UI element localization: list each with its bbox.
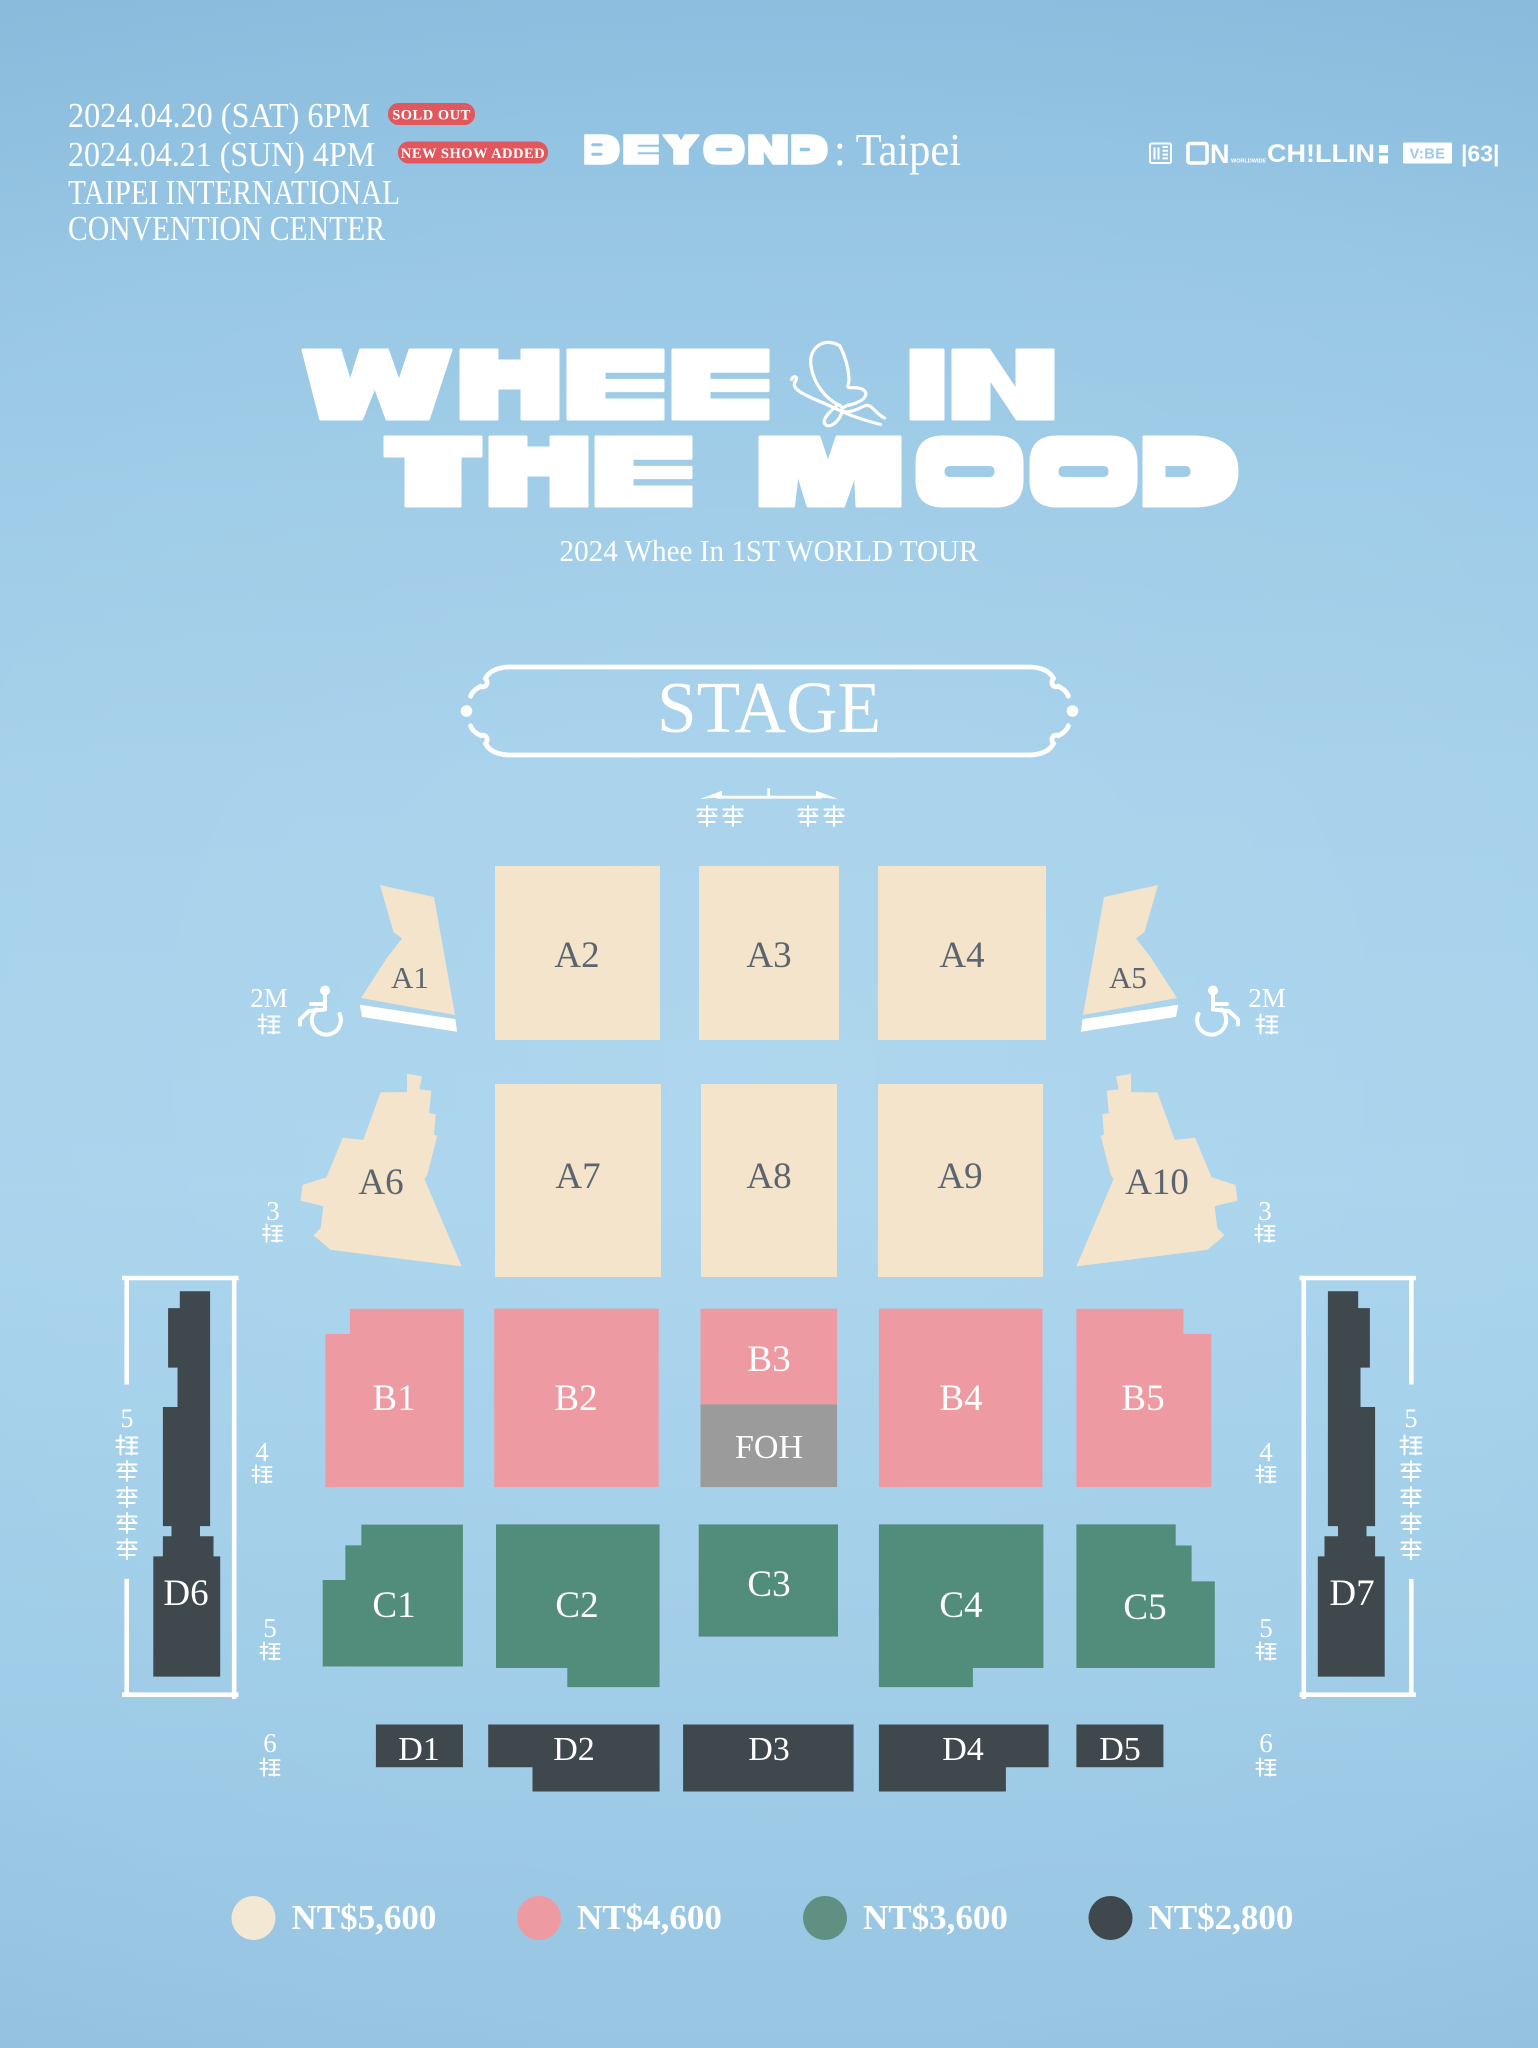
svg-text:A3: A3 [746,935,791,976]
svg-text:STAGE: STAGE [657,667,881,748]
svg-text:A4: A4 [939,935,984,976]
svg-text:A7: A7 [555,1156,600,1197]
svg-text:B2: B2 [554,1378,597,1419]
svg-text:NT$4,600: NT$4,600 [577,1898,722,1937]
svg-text:B1: B1 [372,1378,415,1419]
svg-text:FOH: FOH [735,1429,803,1466]
svg-text:A6: A6 [358,1162,403,1203]
svg-text:D7: D7 [1329,1573,1374,1614]
svg-text:2M: 2M [1248,983,1286,1013]
svg-text:D3: D3 [748,1731,790,1768]
svg-text:B5: B5 [1121,1378,1164,1419]
svg-text:N: N [1210,139,1230,169]
svg-text:WORLDWIDE: WORLDWIDE [1231,159,1266,165]
svg-text:5: 5 [1259,1613,1273,1643]
svg-text:4: 4 [255,1437,269,1467]
svg-text:D1: D1 [398,1731,440,1768]
svg-text:V:BE: V:BE [1410,147,1446,163]
svg-text:D6: D6 [163,1573,208,1614]
svg-text:NEW SHOW ADDED: NEW SHOW ADDED [401,146,545,162]
svg-text:5: 5 [263,1613,277,1643]
svg-text:C5: C5 [1123,1587,1166,1628]
svg-text:A9: A9 [937,1156,982,1197]
svg-text:B3: B3 [747,1339,790,1380]
svg-text:5: 5 [1405,1404,1418,1433]
svg-text:: Taipei: : Taipei [834,125,961,175]
svg-text:D4: D4 [942,1731,984,1768]
svg-text:2024.04.21 (SUN) 4PM: 2024.04.21 (SUN) 4PM [68,135,375,174]
svg-text:3: 3 [1258,1196,1272,1226]
svg-text:D2: D2 [553,1731,595,1768]
svg-text:A1: A1 [391,960,429,995]
svg-text:TAIPEI INTERNATIONAL: TAIPEI INTERNATIONAL [68,173,400,212]
svg-text:A8: A8 [746,1156,791,1197]
svg-text:A5: A5 [1109,960,1147,995]
svg-text:C3: C3 [747,1564,790,1605]
svg-text:A10: A10 [1125,1162,1189,1203]
svg-text:5: 5 [121,1404,134,1433]
svg-text:C2: C2 [555,1585,598,1626]
svg-text:2024.04.20 (SAT) 6PM: 2024.04.20 (SAT) 6PM [68,96,370,135]
svg-text:3: 3 [266,1196,280,1226]
svg-text:4: 4 [1259,1437,1273,1467]
svg-text:C4: C4 [939,1585,982,1626]
svg-text:2M: 2M [250,983,288,1013]
svg-text:2024 Whee In 1ST WORLD TOUR: 2024 Whee In 1ST WORLD TOUR [560,533,979,568]
svg-text:NT$2,800: NT$2,800 [1149,1898,1294,1937]
svg-text:D5: D5 [1099,1731,1141,1768]
svg-text:SOLD OUT: SOLD OUT [392,108,471,124]
svg-text:NT$5,600: NT$5,600 [292,1898,437,1937]
svg-text:B4: B4 [939,1378,982,1419]
svg-text:6: 6 [1259,1728,1273,1758]
svg-text:CH!LLIN: CH!LLIN [1267,140,1375,168]
svg-text:NT$3,600: NT$3,600 [863,1898,1008,1937]
svg-text:CONVENTION CENTER: CONVENTION CENTER [68,209,386,248]
svg-text:C1: C1 [372,1585,415,1626]
svg-text:|63|: |63| [1461,141,1499,167]
svg-text:A2: A2 [554,935,599,976]
svg-text:6: 6 [263,1728,277,1758]
